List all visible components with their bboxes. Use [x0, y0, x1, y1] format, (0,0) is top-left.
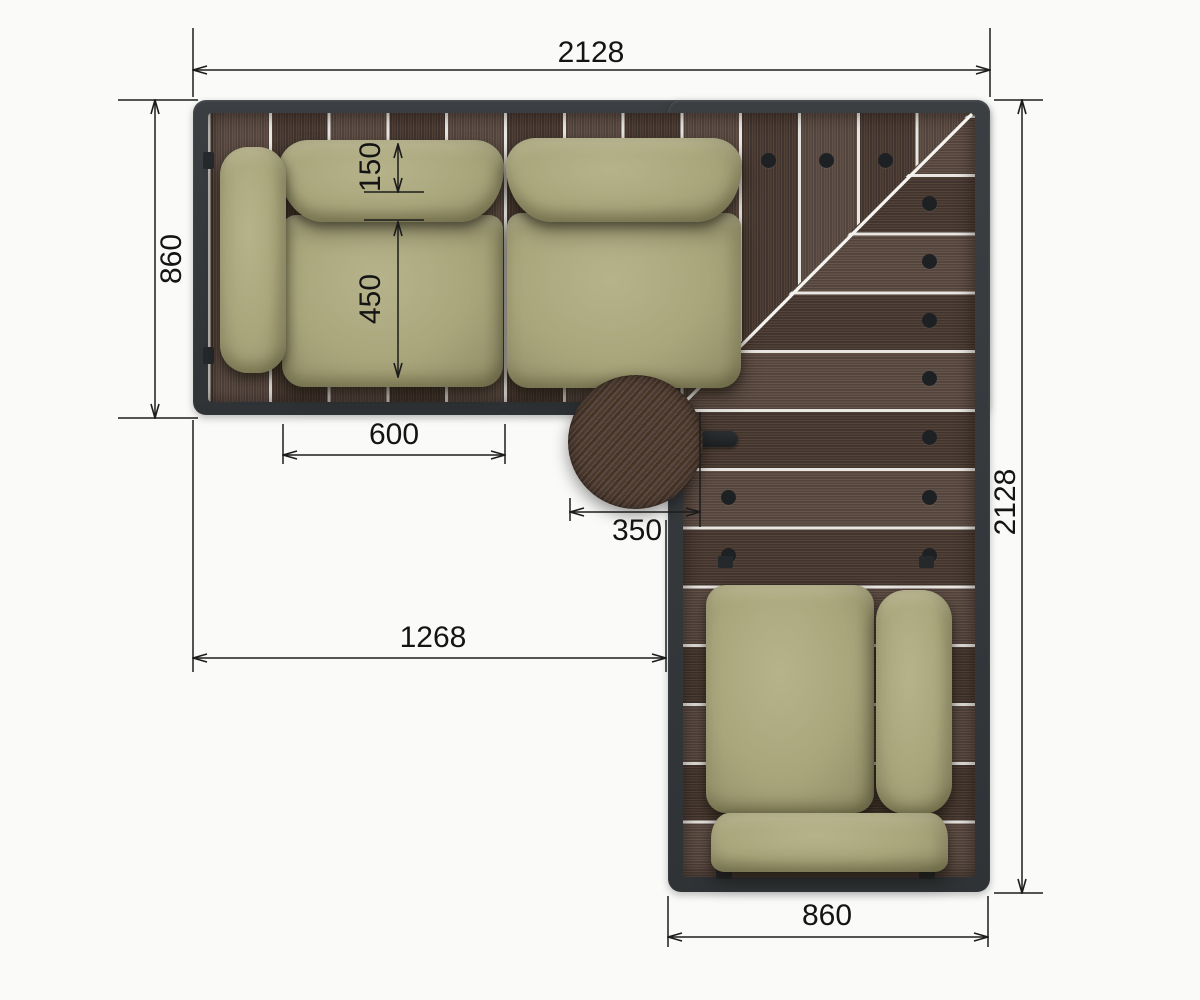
fastener-dot: [922, 430, 937, 445]
fastener-dot: [761, 153, 776, 168]
dim-label-table-diameter: 350: [612, 514, 662, 548]
fastener-dot: [922, 254, 937, 269]
technical-drawing-canvas: 2128 860 150 450 600 350 1268 2128 860: [0, 0, 1200, 1000]
frame-clip: [718, 556, 733, 568]
frame-clip: [203, 152, 214, 169]
backrest-cushion-3: [711, 813, 948, 872]
fastener-dot: [922, 313, 937, 328]
dim-label-bottom-width: 860: [802, 899, 852, 933]
fastener-dot: [922, 196, 937, 211]
seat-cushion-1: [282, 215, 503, 387]
backrest-cushion-1: [279, 140, 504, 222]
seat-cushion-2: [507, 213, 741, 388]
armrest-cushion-left: [220, 147, 286, 373]
fastener-dot: [922, 490, 937, 505]
backrest-cushion-2: [506, 138, 742, 222]
armrest-cushion-right: [876, 590, 952, 814]
dim-label-inner-width: 1268: [400, 621, 467, 655]
dim-label-seat-depth: 450: [354, 274, 388, 324]
frame-clip: [919, 556, 934, 568]
fastener-dot: [922, 371, 937, 386]
dim-label-backrest-depth: 150: [354, 142, 388, 192]
seat-cushion-3: [706, 585, 874, 813]
dim-label-seat-width: 600: [369, 418, 419, 452]
deck-handle: [698, 431, 738, 447]
fastener-dot: [819, 153, 834, 168]
dim-label-left-depth: 860: [155, 234, 189, 284]
dim-label-right-height: 2128: [989, 469, 1023, 536]
fastener-dot: [721, 490, 736, 505]
fastener-dot: [878, 153, 893, 168]
round-coffee-table: [568, 375, 703, 509]
frame-clip: [203, 347, 214, 364]
dim-label-top-width: 2128: [558, 36, 625, 70]
